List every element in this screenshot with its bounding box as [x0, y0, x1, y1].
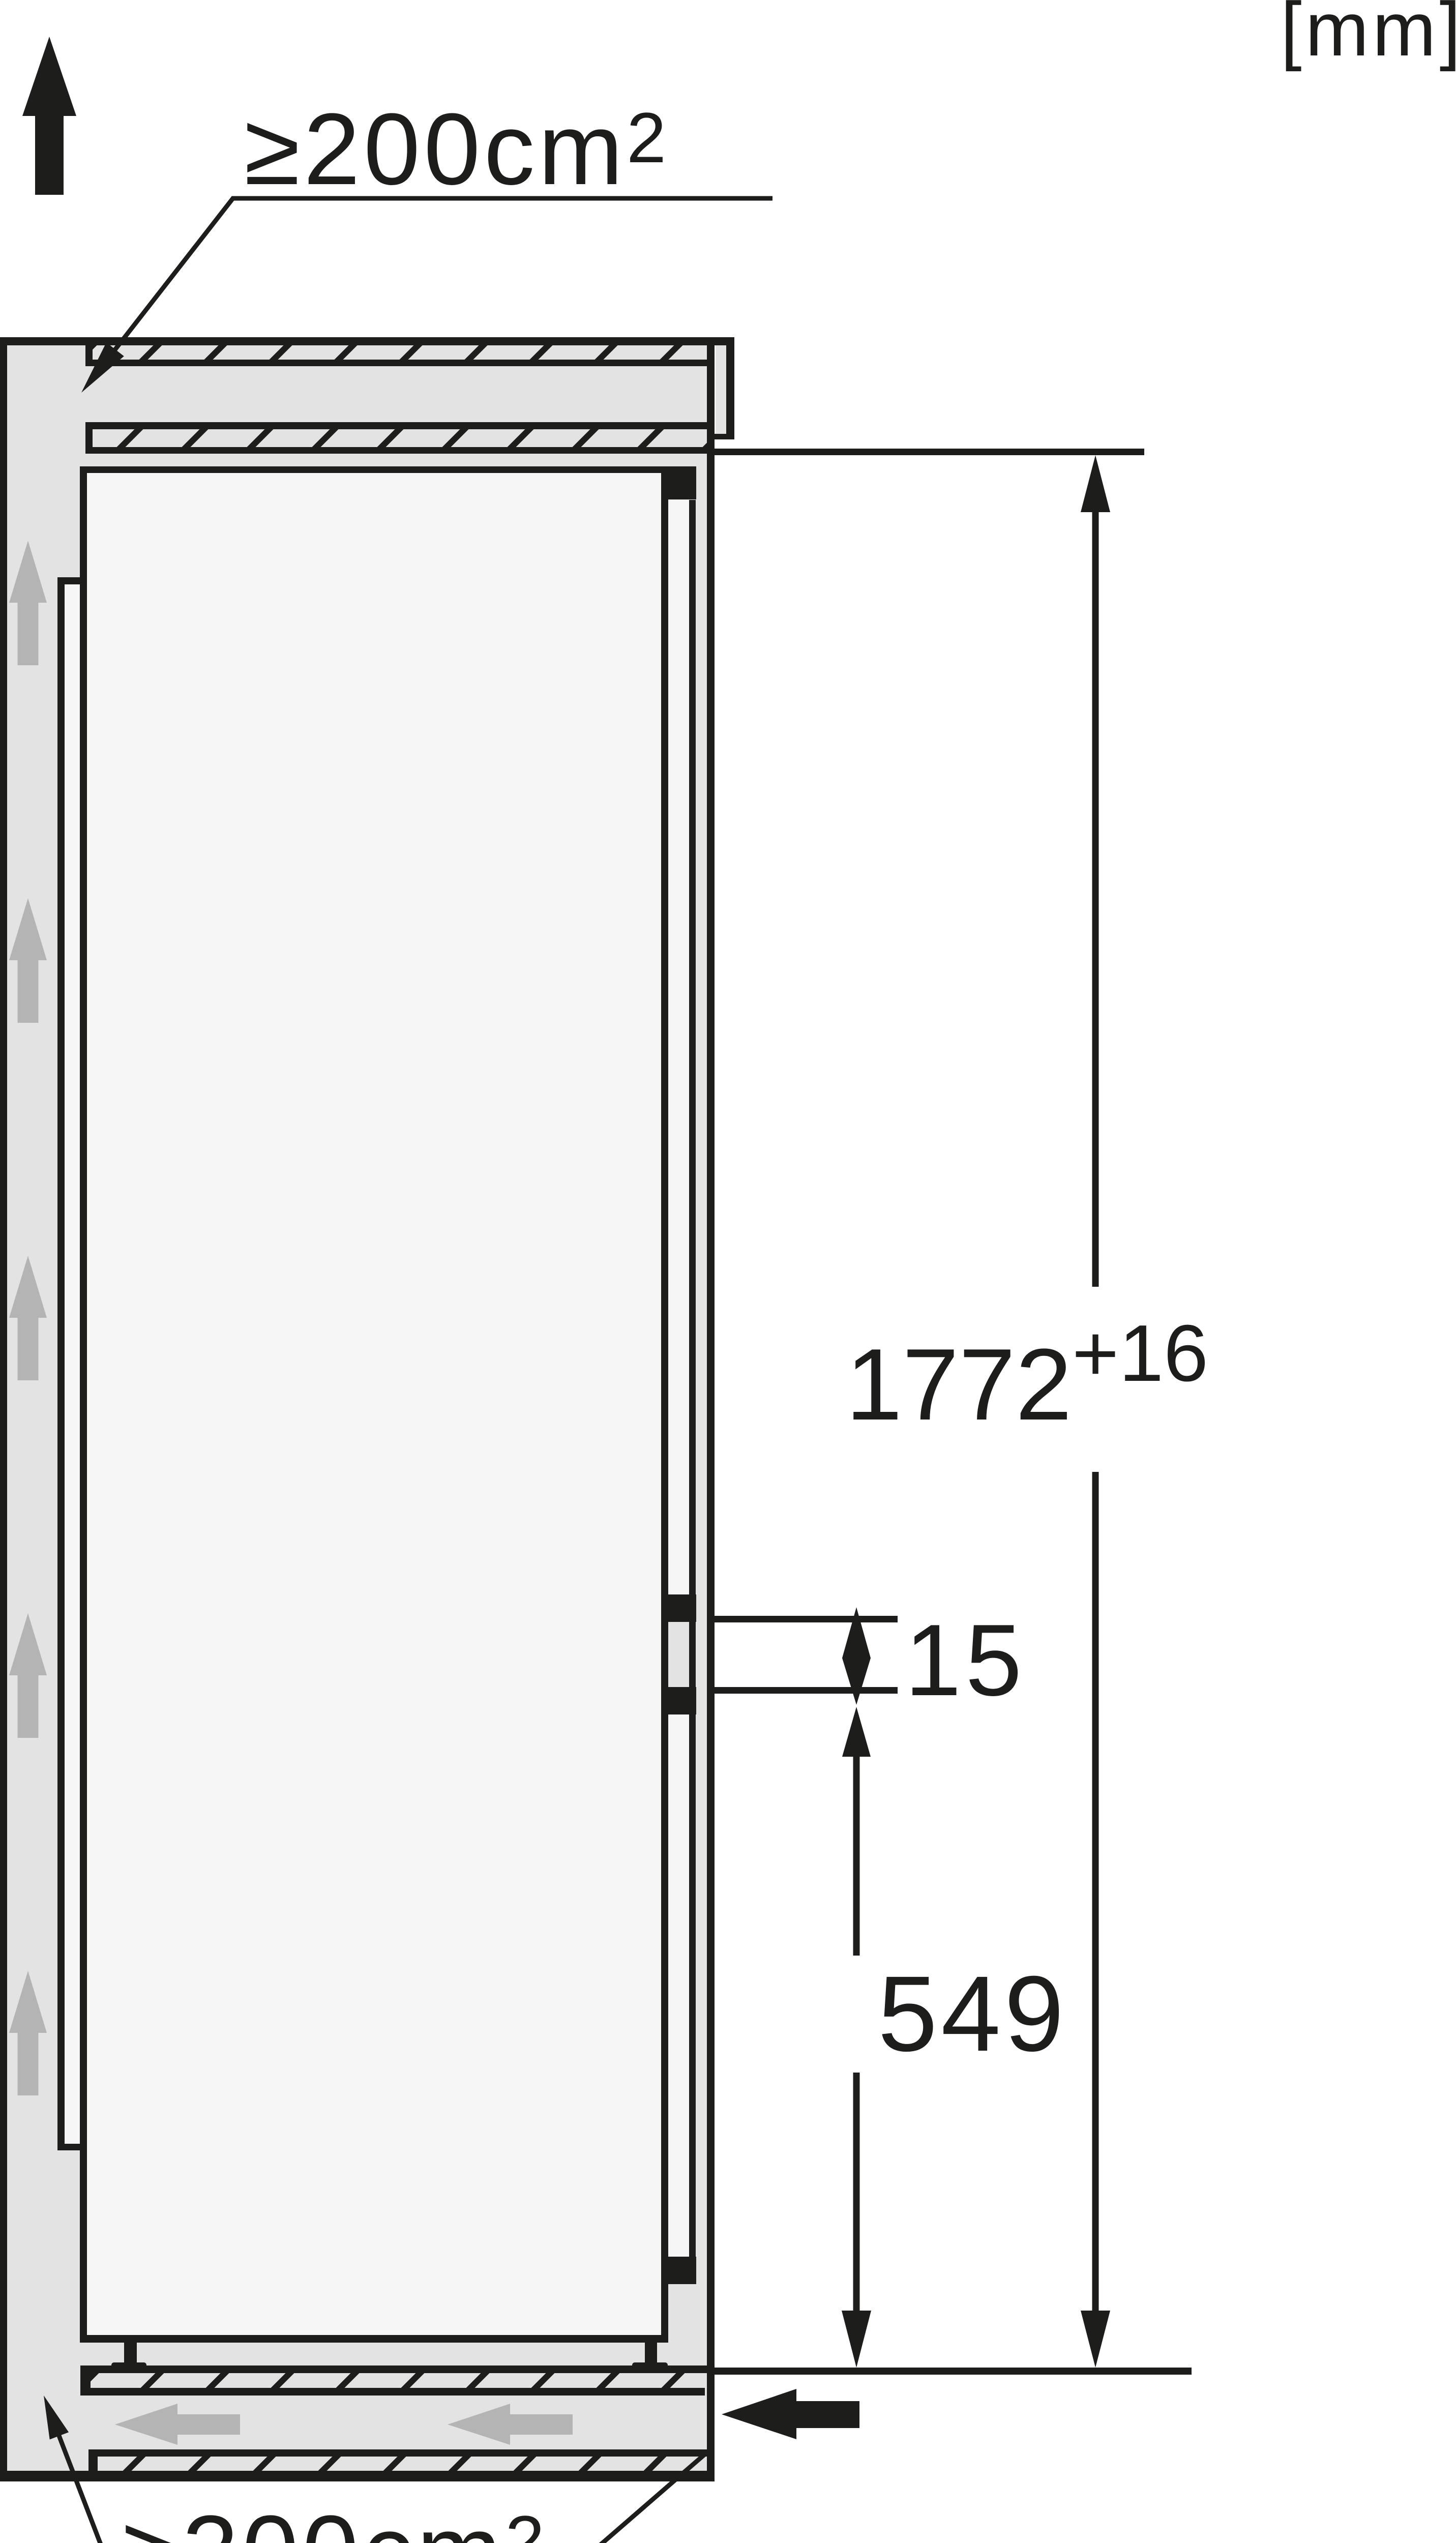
svg-text:≥200cm2: ≥200cm2 [244, 93, 670, 206]
svg-text:549: 549 [878, 1954, 1067, 2074]
svg-text:[mm]: [mm] [1281, 0, 1456, 72]
svg-text:≥200cm2: ≥200cm2 [123, 2495, 548, 2543]
svg-text:15: 15 [905, 1604, 1026, 1717]
